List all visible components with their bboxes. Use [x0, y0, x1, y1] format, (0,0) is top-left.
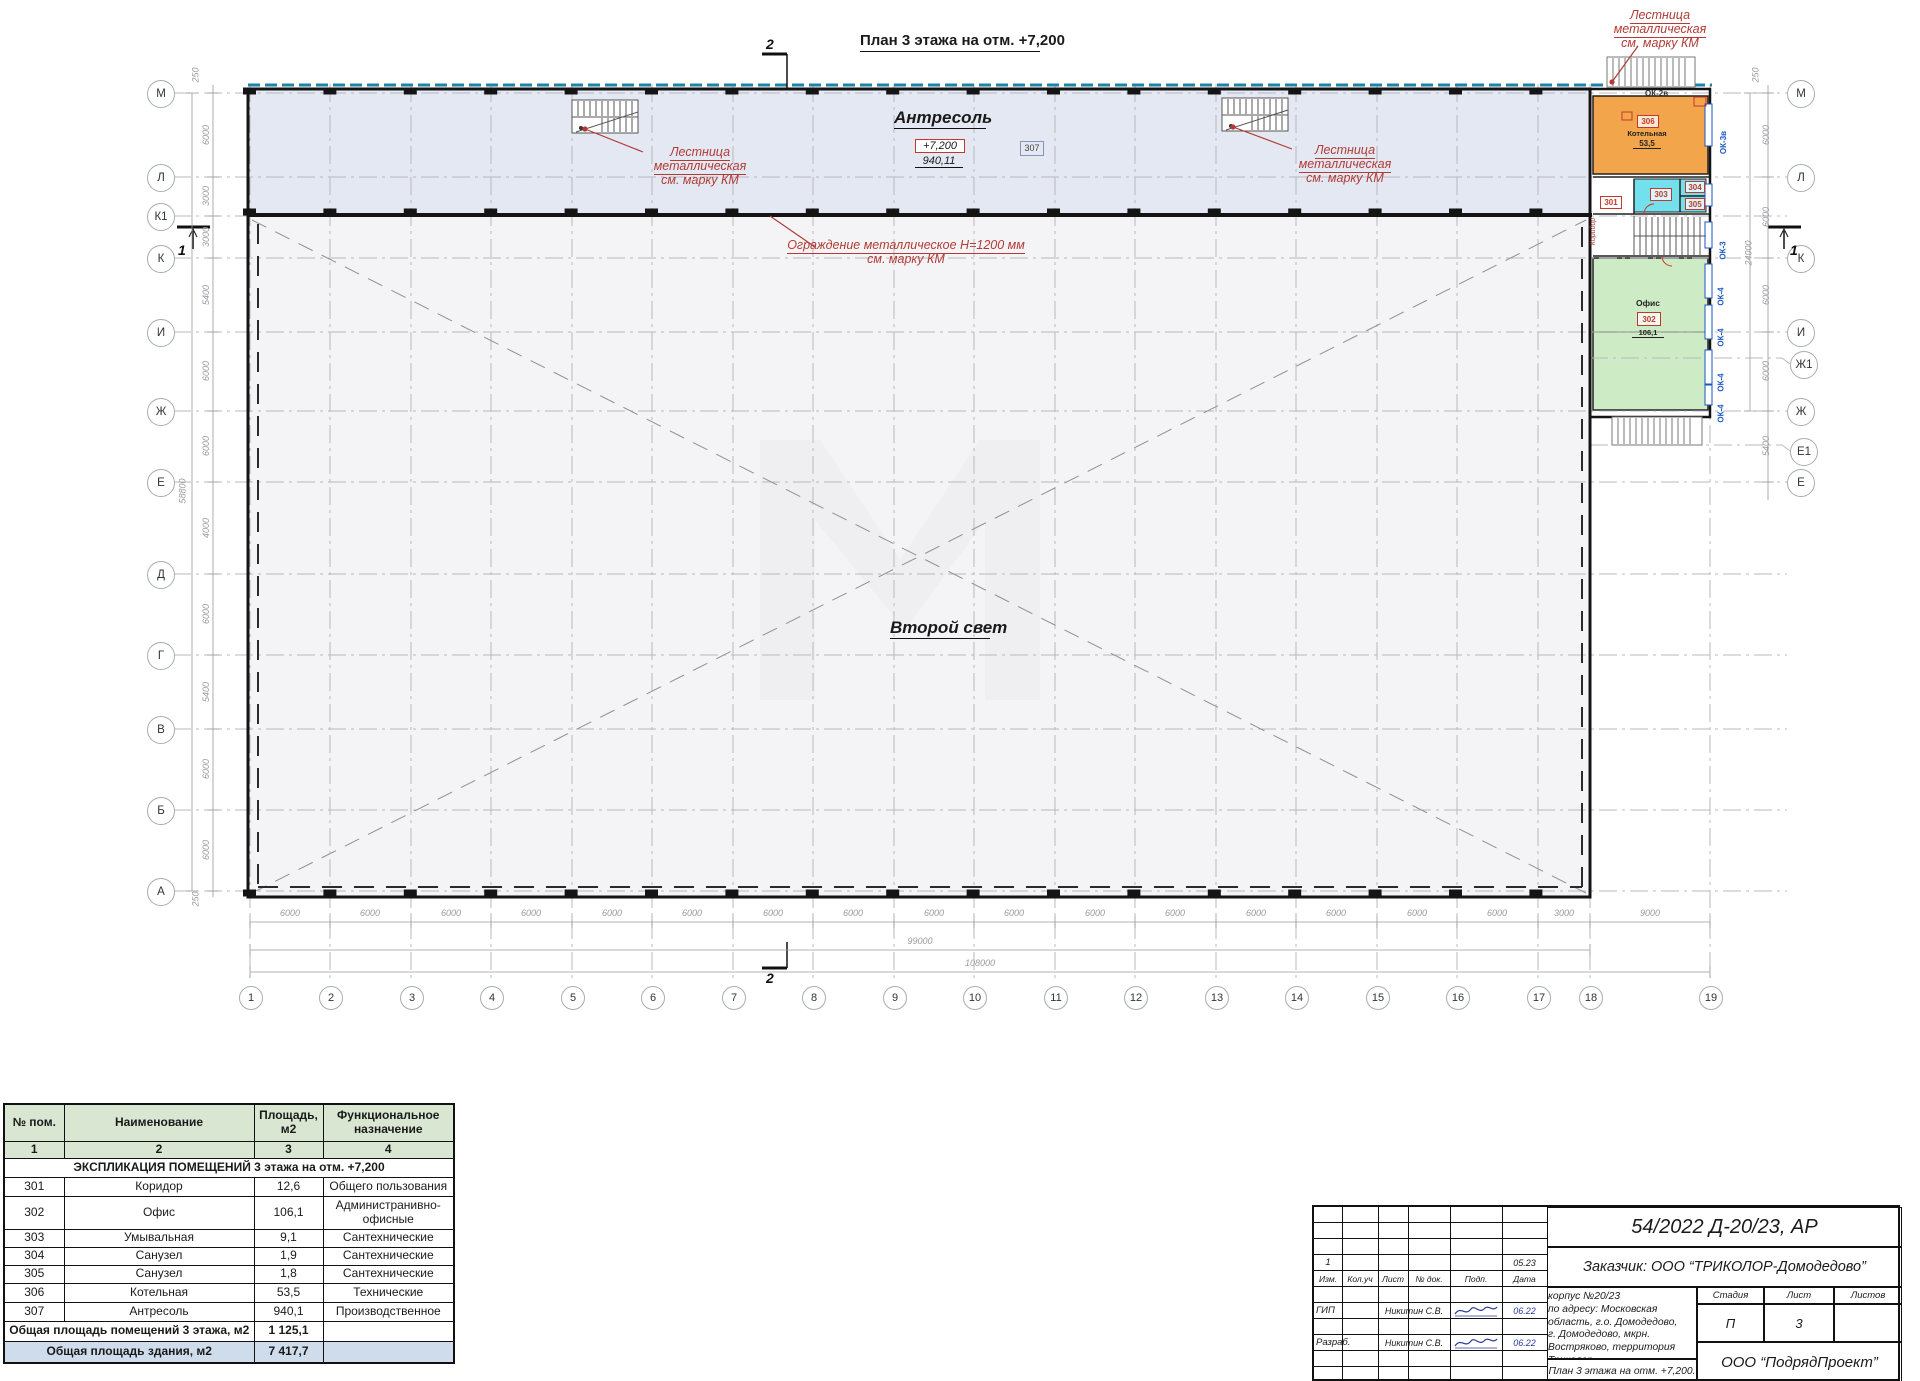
dim-left-9: 5400: [201, 682, 211, 702]
window-label-ok4-4: ОК-4: [1717, 404, 1726, 422]
cell-func: Производственное: [323, 1302, 454, 1321]
office-area: 106,1: [1632, 328, 1664, 338]
dim-bay-15: 6000: [1377, 908, 1457, 918]
col-num-1: 1: [4, 1141, 64, 1158]
project-line1: Производственно-складской корпус №20/23: [1548, 1287, 1696, 1304]
axis-left-i: И: [147, 319, 175, 347]
second-light-label: Второй свет: [890, 618, 990, 639]
axis-left-e: Е: [147, 469, 175, 497]
table-row: 303Умывальная 9,1Сантехнические: [4, 1229, 454, 1247]
axis-left-k: К: [147, 245, 175, 273]
dim-left-2: 3000: [201, 186, 211, 206]
schedule-section-title: ЭКСПЛИКАЦИЯ ПОМЕЩЕНИЙ 3 этажа на отм. +7…: [4, 1158, 454, 1177]
rev-h-data: Дата: [1502, 1271, 1547, 1286]
rev-h-koluch: Кол.уч: [1342, 1271, 1378, 1286]
col-num-2: 2: [64, 1141, 254, 1158]
window-label-ok2v: ОК-2в: [1645, 89, 1668, 98]
axis-right-zh: Ж: [1787, 398, 1815, 426]
date-razrab: 06.22: [1502, 1335, 1547, 1350]
room-tag-301: 301: [1600, 196, 1622, 209]
table-row: 307Антресоль 940,1Производственное: [4, 1302, 454, 1321]
total-floor-empty: [323, 1321, 454, 1341]
total-building-empty: [323, 1341, 454, 1363]
signature-gip: [1452, 1304, 1500, 1318]
cell-num: 303: [4, 1229, 64, 1247]
stair-note-2-line1: Лестница металлическая: [1299, 143, 1392, 173]
stair-note-2-line2: см. марку КМ: [1306, 171, 1384, 185]
cell-num: 302: [4, 1196, 64, 1229]
axis-right-m: М: [1787, 80, 1815, 108]
cell-func: Сантехнические: [323, 1229, 454, 1247]
dim-right-1: 6000: [1761, 125, 1771, 145]
rev-h-podp: Подп.: [1450, 1271, 1502, 1286]
dim-total-108000: 108000: [250, 958, 1710, 968]
axis-15: 15: [1366, 986, 1390, 1010]
cell-name: Антресоль: [64, 1302, 254, 1321]
dim-bay-3: 6000: [411, 908, 491, 918]
dim-bay-4: 6000: [491, 908, 571, 918]
dim-bay-16: 6000: [1457, 908, 1537, 918]
dim-right-2: 6000: [1761, 207, 1771, 227]
dim-right-3: 6000: [1761, 285, 1771, 305]
axis-2: 2: [319, 986, 343, 1010]
title-block: 1 05.23 Изм. Кол.уч Лист № док. Подп. Да…: [1312, 1205, 1900, 1381]
dim-left-10: 6000: [201, 759, 211, 779]
total-building-label: Общая площадь здания, м2: [4, 1341, 254, 1363]
table-row: 305Санузел 1,8Сантехнические: [4, 1265, 454, 1283]
col-header-area: Площадь, м2: [254, 1104, 323, 1141]
dim-left-4: 5400: [201, 285, 211, 305]
railing-note-line2: см. марку КМ: [867, 252, 945, 266]
axis-right-zh1: Ж1: [1790, 351, 1818, 379]
axis-left-v: В: [147, 716, 175, 744]
dim-bay-9: 6000: [894, 908, 974, 918]
cell-func: Сантехнические: [323, 1265, 454, 1283]
boiler-name: Котельная: [1617, 129, 1677, 138]
axis-right-e: Е: [1787, 469, 1815, 497]
cell-num: 306: [4, 1283, 64, 1302]
antresol-elevation: +7,200: [915, 139, 965, 153]
dim-total-99000: 99000: [250, 936, 1590, 946]
cell-area: 53,5: [254, 1283, 323, 1302]
dim-bay-6: 6000: [652, 908, 732, 918]
axis-19: 19: [1699, 986, 1723, 1010]
name-razrab: Никитин С.В.: [1378, 1335, 1450, 1350]
section-mark-left: 1: [178, 242, 186, 258]
revision-grid: [1314, 1207, 1547, 1381]
date-gip: 06.22: [1502, 1303, 1547, 1318]
rev-date: 05.23: [1502, 1255, 1547, 1270]
dim-bay-11: 6000: [1055, 908, 1135, 918]
project-line3: г. Домодедово, мкрн. Востряково, террито…: [1548, 1329, 1696, 1359]
dim-bay-8: 6000: [813, 908, 893, 918]
total-floor-row: Общая площадь помещений 3 этажа, м2 1 12…: [4, 1321, 454, 1341]
room-schedule-table: № пом. Наименование Площадь, м2 Функцион…: [3, 1103, 455, 1364]
axis-left-m: М: [147, 80, 175, 108]
doc-number: 54/2022 Д-20/23, АР: [1547, 1207, 1902, 1247]
table-row: 306Котельная 53,5Технические: [4, 1283, 454, 1302]
cell-num: 301: [4, 1177, 64, 1196]
col-num-4: 4: [323, 1141, 454, 1158]
grid-line: [1342, 1207, 1343, 1381]
axis-left-g: Г: [147, 642, 175, 670]
dim-left-11: 6000: [201, 840, 211, 860]
cell-name: Санузел: [64, 1265, 254, 1283]
window-label-ok3v: ОК-3в: [1719, 131, 1728, 154]
axis-14: 14: [1285, 986, 1309, 1010]
total-floor-label: Общая площадь помещений 3 этажа, м2: [4, 1321, 254, 1341]
axis-6: 6: [641, 986, 665, 1010]
window-label-ok4-3: ОК-4: [1717, 373, 1726, 391]
axis-16: 16: [1446, 986, 1470, 1010]
total-floor-value: 1 125,1: [254, 1321, 323, 1341]
dim-left-3: 3000: [201, 227, 211, 247]
axis-right-l: Л: [1787, 164, 1815, 192]
antresol-area: 940,11: [915, 155, 963, 168]
role-gip: ГИП: [1316, 1303, 1376, 1318]
antresol-room-tag: 307: [1020, 141, 1044, 156]
cell-area: 106,1: [254, 1196, 323, 1229]
dim-bay-10: 6000: [974, 908, 1054, 918]
cell-name: Коридор: [64, 1177, 254, 1196]
dim-left-5: 6000: [201, 361, 211, 381]
table-row: 301Коридор 12,6Общего пользования: [4, 1177, 454, 1196]
stair-note-1-line1: Лестница металлическая: [654, 145, 747, 175]
cell-area: 9,1: [254, 1229, 323, 1247]
cell-func: Администранивно-офисные: [323, 1196, 454, 1229]
axis-1: 1: [239, 986, 263, 1010]
office-name: Офис: [1628, 298, 1668, 308]
sheets-label: Листов: [1834, 1287, 1902, 1304]
room-tag-305: 305: [1685, 198, 1705, 210]
axis-4: 4: [480, 986, 504, 1010]
axis-18: 18: [1579, 986, 1603, 1010]
stair-note-3: Лестница металлическая см. марку КМ: [1585, 8, 1735, 50]
room-tag-306: 306: [1637, 115, 1659, 128]
axis-left-b: Б: [147, 797, 175, 825]
stair-1-symbol: [572, 100, 638, 133]
cell-area: 1,9: [254, 1247, 323, 1265]
dim-bay-18: 9000: [1590, 908, 1710, 918]
axis-13: 13: [1205, 986, 1229, 1010]
external-stair-bottom: [1612, 417, 1702, 445]
col-header-func: Функциональное назначение: [323, 1104, 454, 1141]
dim-bay-14: 6000: [1296, 908, 1376, 918]
corridor-name: Коридор: [1590, 218, 1597, 245]
plan-title: План 3 этажа на отм. +7,200: [860, 32, 1040, 52]
name-gip: Никитин С.В.: [1378, 1303, 1450, 1318]
axis-3: 3: [400, 986, 424, 1010]
cell-name: Умывальная: [64, 1229, 254, 1247]
role-razrab: Разраб.: [1316, 1335, 1376, 1350]
cell-area: 940,1: [254, 1302, 323, 1321]
dim-bay-13: 6000: [1216, 908, 1296, 918]
stair-note-3-line1: Лестница металлическая: [1614, 8, 1707, 38]
total-building-value: 7 417,7: [254, 1341, 323, 1363]
axis-10: 10: [963, 986, 987, 1010]
rev-number: 1: [1314, 1255, 1342, 1270]
cell-area: 1,8: [254, 1265, 323, 1283]
dim-left-6: 6000: [201, 436, 211, 456]
axis-8: 8: [802, 986, 826, 1010]
room-schedule: № пом. Наименование Площадь, м2 Функцион…: [3, 1103, 455, 1364]
window-label-ok3: ОК-3: [1719, 241, 1728, 259]
room-tag-302: 302: [1637, 312, 1661, 326]
col-num-3: 3: [254, 1141, 323, 1158]
axis-17: 17: [1527, 986, 1551, 1010]
stair-note-3-line2: см. марку КМ: [1621, 36, 1699, 50]
cell-name: Офис: [64, 1196, 254, 1229]
dim-bay-17: 3000: [1538, 908, 1590, 918]
col-header-num: № пом.: [4, 1104, 64, 1141]
client-name: Заказчик: ООО “ТРИКОЛОР-Домодедово”: [1547, 1247, 1902, 1287]
project-description: Производственно-складской корпус №20/23 …: [1547, 1287, 1697, 1359]
dim-left-total: 58800: [178, 478, 188, 503]
dim-right-total: 24000: [1744, 240, 1754, 265]
axis-right-e1: Е1: [1790, 438, 1818, 466]
cell-func: Сантехнические: [323, 1247, 454, 1265]
grid-line: [1408, 1207, 1409, 1381]
rev-h-ndok: № док.: [1408, 1271, 1450, 1286]
cell-num: 304: [4, 1247, 64, 1265]
sheets-value: [1834, 1304, 1902, 1342]
dim-left-250b: 250: [191, 891, 201, 906]
sheet-title: План 3 этажа на отм. +7,200.: [1547, 1359, 1697, 1381]
signature-razrab: [1452, 1336, 1500, 1350]
stair-note-1: Лестница металлическая см. марку КМ: [625, 145, 775, 187]
cell-name: Санузел: [64, 1247, 254, 1265]
section-mark-top: 2: [766, 36, 774, 52]
cell-func: Технические: [323, 1283, 454, 1302]
dim-right-4: 6000: [1761, 361, 1771, 381]
rev-h-list: Лист: [1378, 1271, 1408, 1286]
sheet-value: 3: [1764, 1304, 1834, 1342]
dim-bay-12: 6000: [1135, 908, 1215, 918]
table-row: 304Санузел 1,9Сантехнические: [4, 1247, 454, 1265]
axis-left-k1: К1: [147, 203, 175, 231]
dim-bay-2: 6000: [330, 908, 410, 918]
dim-bay-5: 6000: [572, 908, 652, 918]
section-mark-bottom: 2: [766, 970, 774, 986]
boiler-area: 53,5: [1633, 139, 1661, 149]
axis-5: 5: [561, 986, 585, 1010]
project-line2: по адресу: Московская область, г.о. Домо…: [1548, 1304, 1696, 1330]
room-tag-304: 304: [1685, 181, 1705, 193]
window-label-ok4-2: ОК-4: [1717, 328, 1726, 346]
dim-left-1: 6000: [201, 125, 211, 145]
stage-value: П: [1697, 1304, 1764, 1342]
table-row: 302Офис 106,1Администранивно-офисные: [4, 1196, 454, 1229]
rev-h-izm: Изм.: [1314, 1271, 1342, 1286]
axis-left-d: Д: [147, 561, 175, 589]
stair-note-2: Лестница металлическая см. марку КМ: [1270, 143, 1420, 185]
grid-line: [1502, 1207, 1503, 1381]
cell-num: 307: [4, 1302, 64, 1321]
total-building-row: Общая площадь здания, м2 7 417,7: [4, 1341, 454, 1363]
window-label-ok4-1: ОК-4: [1717, 287, 1726, 305]
grid-line: [1378, 1207, 1379, 1381]
axis-12: 12: [1124, 986, 1148, 1010]
dim-left-250t: 250: [191, 67, 201, 82]
axis-left-l: Л: [147, 164, 175, 192]
axis-7: 7: [722, 986, 746, 1010]
axis-11: 11: [1044, 986, 1068, 1010]
dim-left-7: 4000: [201, 518, 211, 538]
dim-bay-7: 6000: [733, 908, 813, 918]
axis-left-zh: Ж: [147, 398, 175, 426]
section-mark-right: 1: [1790, 242, 1798, 258]
company-name: ООО “ПодрядПроект”: [1697, 1342, 1902, 1381]
cell-name: Котельная: [64, 1283, 254, 1302]
cell-num: 305: [4, 1265, 64, 1283]
cell-func: Общего пользования: [323, 1177, 454, 1196]
dim-left-8: 6000: [201, 604, 211, 624]
antresol-label: Антресоль: [894, 108, 986, 129]
cell-area: 12,6: [254, 1177, 323, 1196]
external-stair-top: [1607, 57, 1695, 87]
stair-note-1-line2: см. марку КМ: [661, 173, 739, 187]
room-tag-303: 303: [1650, 188, 1672, 201]
railing-note: Ограждение металлическое Н=1200 мм см. м…: [775, 238, 1037, 266]
axis-right-i: И: [1787, 319, 1815, 347]
axis-9: 9: [883, 986, 907, 1010]
drawing-sheet: План 3 этажа на отм. +7,200 Антресоль +7…: [0, 0, 1920, 1381]
sheet-label: Лист: [1764, 1287, 1834, 1304]
dim-bay-1: 6000: [250, 908, 330, 918]
dim-right-5: 5400: [1761, 436, 1771, 456]
grid-line: [1450, 1207, 1451, 1381]
axis-left-a: А: [147, 878, 175, 906]
col-header-name: Наименование: [64, 1104, 254, 1141]
dim-right-250: 250: [1751, 67, 1761, 82]
stage-label: Стадия: [1697, 1287, 1764, 1304]
